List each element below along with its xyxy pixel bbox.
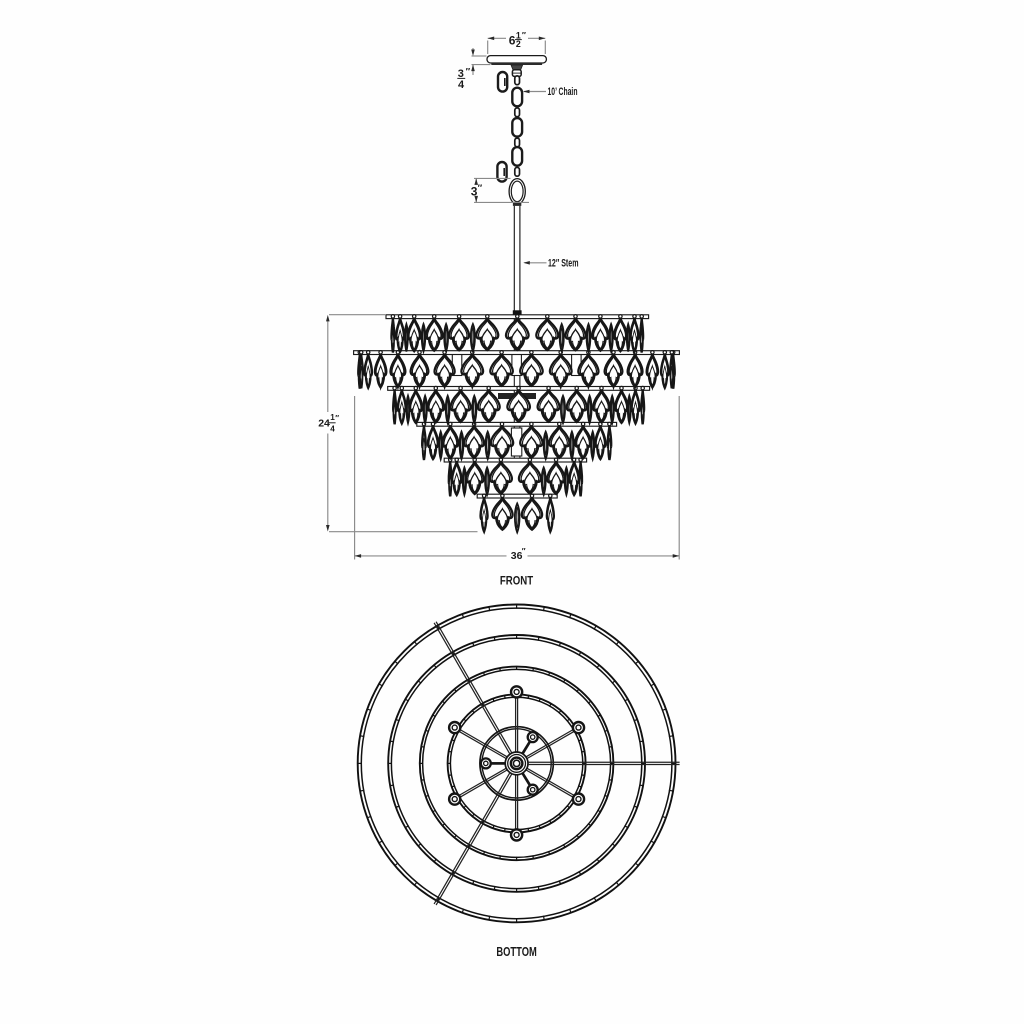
svg-text:″: ″ xyxy=(478,183,483,194)
svg-text:″: ″ xyxy=(522,547,526,556)
svg-text:4: 4 xyxy=(458,79,465,91)
svg-text:4: 4 xyxy=(330,424,335,433)
svg-text:″: ″ xyxy=(335,414,339,423)
svg-text:24: 24 xyxy=(318,418,330,430)
svg-text:2: 2 xyxy=(516,39,521,49)
svg-text:10’ Chain: 10’ Chain xyxy=(548,86,578,98)
svg-text:″: ″ xyxy=(522,30,526,40)
svg-text:FRONT: FRONT xyxy=(500,574,534,588)
svg-text:BOTTOM: BOTTOM xyxy=(496,945,536,959)
svg-text:″: ″ xyxy=(466,67,471,78)
svg-text:12″ Stem: 12″ Stem xyxy=(548,257,579,269)
svg-text:6: 6 xyxy=(509,33,516,47)
